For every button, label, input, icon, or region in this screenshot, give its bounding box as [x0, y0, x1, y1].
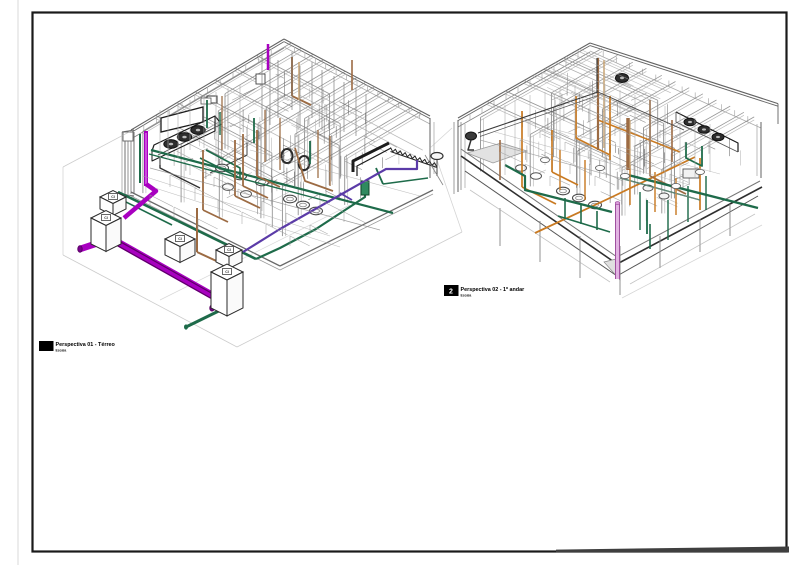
svg-text:CI: CI	[227, 248, 231, 252]
svg-text:CI: CI	[104, 216, 108, 220]
svg-text:CI: CI	[111, 195, 115, 199]
svg-text:Perspectiva 02 - 1º andar: Perspectiva 02 - 1º andar	[461, 287, 526, 293]
svg-text:Perspectiva 01 - Térreo: Perspectiva 01 - Térreo	[56, 342, 116, 348]
svg-text:Escala: Escala	[56, 348, 67, 352]
svg-text:CI: CI	[225, 270, 229, 274]
svg-text:2: 2	[449, 289, 453, 296]
svg-text:CI: CI	[178, 237, 182, 241]
svg-text:Escala: Escala	[461, 294, 472, 298]
